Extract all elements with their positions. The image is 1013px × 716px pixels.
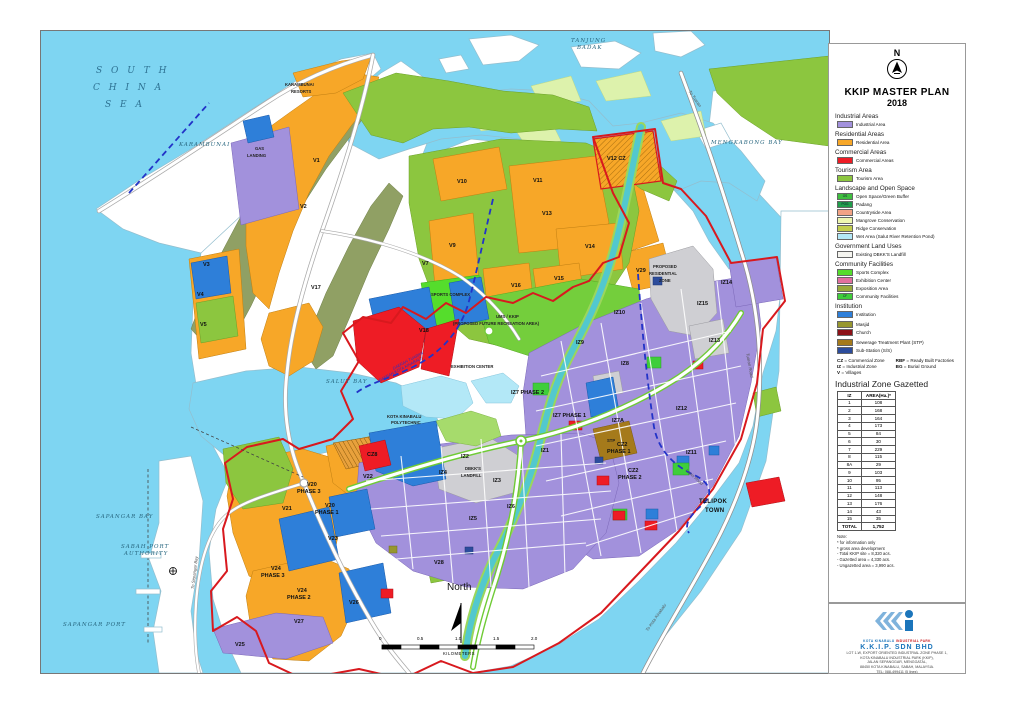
legend-item-label: Community Facilities	[856, 294, 898, 299]
legend-group: MasjidChurch	[835, 321, 959, 336]
table-row: 4173	[838, 422, 896, 430]
address-lines: LOT 1-W, EXPORT ORIENTED INDUSTRIAL ZONE…	[829, 651, 965, 674]
legend-item: Countryside Area	[837, 209, 959, 216]
legend-swatch: OS	[837, 193, 853, 200]
table-row: 584	[838, 430, 896, 438]
abbreviation-item: BG = Burial Ground	[896, 364, 959, 369]
abbreviations: CZ = Commercial ZoneIZ = Industrial Zone…	[837, 358, 959, 375]
legend-item-label: Countryside Area	[856, 210, 891, 215]
legend-year: 2018	[835, 98, 959, 108]
table-title: Industrial Zone Gazetted	[835, 379, 959, 389]
table-row: 1095	[838, 477, 896, 485]
legend-swatch	[837, 277, 853, 284]
legend-swatch	[837, 339, 853, 346]
legend-swatch	[837, 321, 853, 328]
legend-item: Institution	[837, 311, 959, 318]
legend-item-label: Sports Complex	[856, 270, 889, 275]
legend-item-label: Padang	[856, 202, 872, 207]
address-line: LOT 1-W, EXPORT ORIENTED INDUSTRIAL ZONE…	[829, 651, 965, 656]
scale-bar	[382, 645, 534, 649]
legend-item-label: Church	[856, 330, 871, 335]
legend-item-label: Residential Area	[856, 140, 889, 145]
port-authority-symbol	[170, 568, 177, 575]
table-row: 1443	[838, 508, 896, 516]
iz-table-header: IZAREA(Ha.)*	[838, 392, 896, 400]
legend-item-label: Ridge Conservation	[856, 226, 896, 231]
legend-item: Exhibition Center	[837, 277, 959, 284]
legend-item: OSOpen Space/Green Buffer	[837, 193, 959, 200]
legend-item: Residential Area	[837, 139, 959, 146]
legend-title: KKIP MASTER PLAN	[835, 87, 959, 98]
legend-swatch: POG	[837, 201, 853, 208]
legend-groups: Industrial AreasIndustrial AreaResidenti…	[835, 113, 959, 354]
table-column-header: IZ	[838, 392, 862, 400]
legend-swatch	[837, 217, 853, 224]
table-row: 8115	[838, 453, 896, 461]
legend-item: Ridge Conservation	[837, 225, 959, 232]
map-frame: S O U T HC H I N AS E ATANJUNGBADAKKARAM…	[40, 30, 830, 674]
legend-item: Mangrove Conservation	[837, 217, 959, 224]
legend-swatch	[837, 347, 853, 354]
table-row: 11113	[838, 484, 896, 492]
table-column-header: AREA(Ha.)*	[861, 392, 895, 400]
compass: N	[835, 48, 959, 85]
legend-item: Industrial Area	[837, 121, 959, 128]
table-row: 1108	[838, 399, 896, 407]
abbreviation-item: RBF = Ready Built Factories	[896, 358, 959, 363]
table-row: 13176	[838, 500, 896, 508]
company-name: K.K.I.P. SDN BHD	[829, 644, 965, 651]
note-line: - Ungazetted area = 3,990 acs.	[837, 563, 959, 569]
legend-item: Sub-Station (S/S)	[837, 347, 959, 354]
table-row: 2168	[838, 407, 896, 415]
legend-group-heading: Landscape and Open Space	[835, 185, 959, 192]
note-lines: Note:* for information only* gross area …	[837, 534, 959, 568]
table-row: 7229	[838, 446, 896, 454]
abbreviation-item: CZ = Commercial Zone	[837, 358, 890, 363]
legend-item: Existing DBKK'S Landfill	[837, 251, 959, 258]
legend-swatch	[837, 121, 853, 128]
compass-letter: N	[835, 48, 959, 58]
logo-caption-2: INDUSTRIAL PARK	[896, 639, 931, 643]
legend-group-heading: Community Facilities	[835, 261, 959, 268]
legend-group: Government Land UsesExisting DBKK'S Land…	[835, 243, 959, 258]
kkip-logo-icon	[871, 608, 923, 634]
logo-caption-1: KOTA KINABALU	[863, 639, 894, 643]
masjid-zone	[389, 546, 397, 553]
legend-swatch	[837, 269, 853, 276]
legend-item-label: Wet Area (Salut River Retention Pond)	[856, 234, 935, 239]
table-row: 1535	[838, 515, 896, 523]
legend-group: Industrial AreasIndustrial Area	[835, 113, 959, 128]
abbreviation-item: IZ = Industrial Zone	[837, 364, 890, 369]
legend-item: Commercial Areas	[837, 157, 959, 164]
legend-group-heading: Tourism Area	[835, 167, 959, 174]
legend-swatch	[837, 209, 853, 216]
legend-group: Residential AreasResidential Area	[835, 131, 959, 146]
table-row: 630	[838, 438, 896, 446]
legend-swatch	[837, 139, 853, 146]
legend-item: Sewerage Treatment Plant (STP)	[837, 339, 959, 346]
legend-group: Community FacilitiesSports ComplexExhibi…	[835, 261, 959, 300]
legend-group: Tourism AreaTourism Area	[835, 167, 959, 182]
legend-panel: N KKIP MASTER PLAN 2018 Industrial Areas…	[828, 43, 966, 603]
legend-swatch	[837, 157, 853, 164]
table-row: 12148	[838, 492, 896, 500]
iz-table-body: 1108216831644173584630722981158A29910310…	[838, 399, 896, 530]
legend-item-label: Existing DBKK'S Landfill	[856, 252, 906, 257]
legend-item-label: Open Space/Green Buffer	[856, 194, 909, 199]
legend-group-heading: Industrial Areas	[835, 113, 959, 120]
legend-group-heading: Institution	[835, 303, 959, 310]
legend-item-label: Industrial Area	[856, 122, 885, 127]
legend-item: Church	[837, 329, 959, 336]
iz-table: IZAREA(Ha.)* 110821683164417358463072298…	[837, 391, 896, 531]
legend-swatch	[837, 251, 853, 258]
table-row: 3164	[838, 415, 896, 423]
legend-swatch	[837, 225, 853, 232]
legend-item-label: Masjid	[856, 322, 869, 327]
legend-item: Masjid	[837, 321, 959, 328]
legend-item: Sports Complex	[837, 269, 959, 276]
compass-icon	[886, 58, 908, 80]
master-plan-page: S O U T HC H I N AS E ATANJUNGBADAKKARAM…	[0, 0, 1013, 716]
legend-item-label: Mangrove Conservation	[856, 218, 905, 223]
legend-item: POGPadang	[837, 201, 959, 208]
legend-swatch	[837, 285, 853, 292]
logo-box: KOTA KINABALU INDUSTRIAL PARK K.K.I.P. S…	[828, 603, 966, 674]
map-graphic	[41, 31, 829, 673]
left-green-parcel	[196, 296, 238, 343]
legend-item-label: Sub-Station (S/S)	[856, 348, 892, 353]
legend-item-label: Sewerage Treatment Plant (STP)	[856, 340, 924, 345]
legend-item: Wet Area (Salut River Retention Pond)	[837, 233, 959, 240]
legend-group-heading: Commercial Areas	[835, 149, 959, 156]
legend-swatch	[837, 329, 853, 336]
legend-item-label: Exhibition Center	[856, 278, 891, 283]
legend-item-label: Institution	[856, 312, 876, 317]
legend-swatch	[837, 311, 853, 318]
address-line: TEL: 088-499411 (5 lines)	[829, 670, 965, 674]
legend-item-label: Commercial Areas	[856, 158, 894, 163]
legend-group-heading: Government Land Uses	[835, 243, 959, 250]
legend-item-label: Exposition Area	[856, 286, 888, 291]
legend-item: CFCommunity Facilities	[837, 293, 959, 300]
abbreviation-item: V = Villages	[837, 370, 890, 375]
legend-group: InstitutionInstitution	[835, 303, 959, 318]
legend-swatch	[837, 233, 853, 240]
table-total-row: TOTAL1,752	[838, 523, 896, 531]
legend-item-label: Tourism Area	[856, 176, 883, 181]
legend-group: Landscape and Open SpaceOSOpen Space/Gre…	[835, 185, 959, 240]
legend-item: Exposition Area	[837, 285, 959, 292]
table-row: 8A29	[838, 461, 896, 469]
legend-item: Tourism Area	[837, 175, 959, 182]
table-row: 9103	[838, 469, 896, 477]
legend-group: Commercial AreasCommercial Areas	[835, 149, 959, 164]
legend-swatch	[837, 175, 853, 182]
legend-group-heading: Residential Areas	[835, 131, 959, 138]
legend-swatch: CF	[837, 293, 853, 300]
legend-group: Sewerage Treatment Plant (STP)Sub-Statio…	[835, 339, 959, 354]
